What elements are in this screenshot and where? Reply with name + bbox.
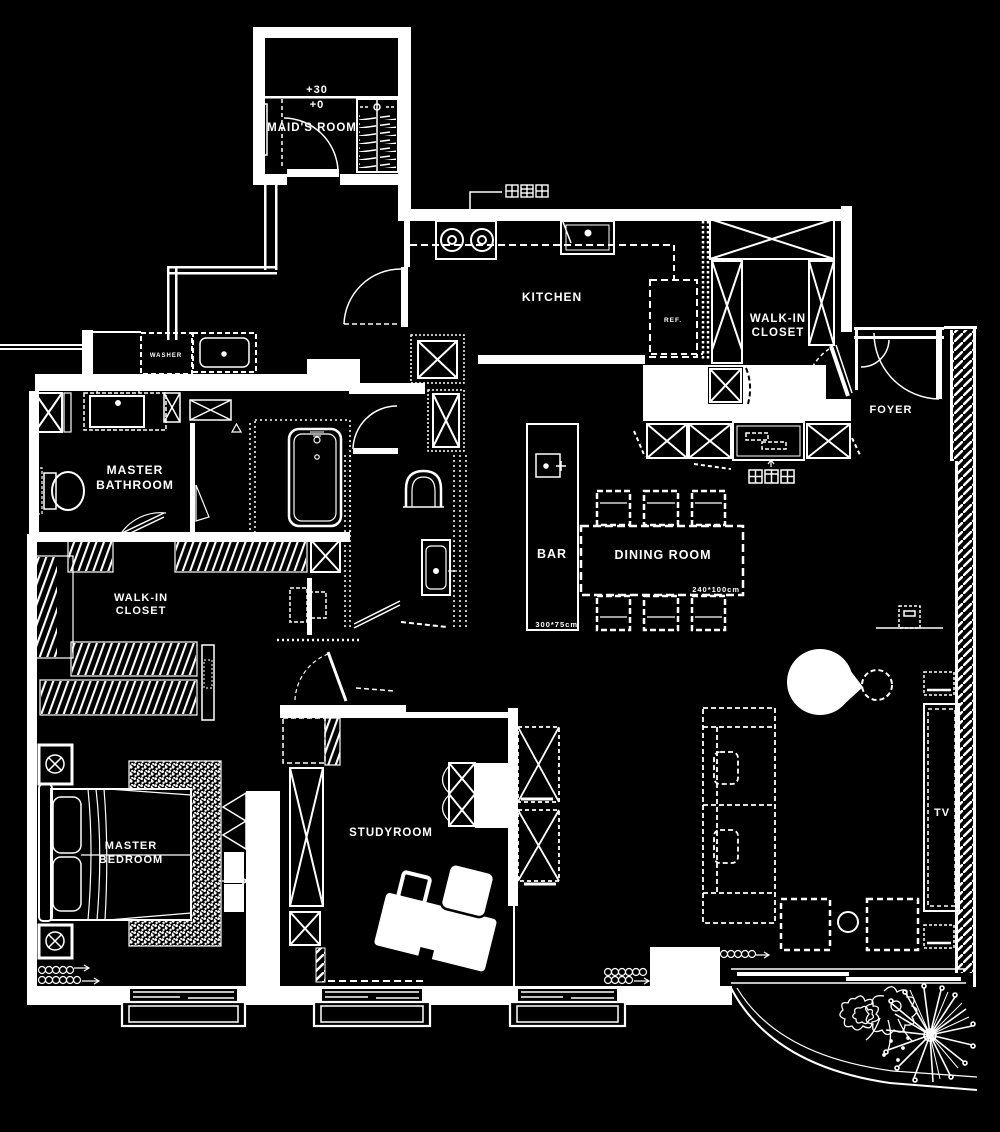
svg-text:240*100cm: 240*100cm (692, 585, 740, 594)
svg-text:REF.: REF. (664, 317, 682, 324)
svg-text:MAID'S ROOM: MAID'S ROOM (267, 122, 357, 134)
svg-text:300*75cm: 300*75cm (535, 620, 578, 629)
svg-text:+0: +0 (310, 99, 325, 111)
svg-text:BATHROOM: BATHROOM (96, 478, 174, 492)
svg-text:BEDROOM: BEDROOM (99, 854, 163, 866)
svg-text:CLOSET: CLOSET (116, 605, 167, 617)
svg-text:KITCHEN: KITCHEN (522, 290, 582, 304)
svg-text:WALK-IN: WALK-IN (750, 313, 806, 325)
svg-text:DINING ROOM: DINING ROOM (614, 548, 711, 562)
svg-text:MASTER: MASTER (107, 463, 164, 477)
svg-text:MASTER: MASTER (105, 840, 157, 852)
svg-text:+30: +30 (306, 84, 328, 96)
svg-text:BAR: BAR (537, 547, 567, 561)
svg-text:TV: TV (934, 807, 950, 819)
svg-text:WASHER: WASHER (150, 353, 182, 359)
svg-text:WALK-IN: WALK-IN (114, 592, 168, 604)
svg-text:CLOSET: CLOSET (752, 327, 805, 339)
svg-text:STUDYROOM: STUDYROOM (349, 827, 433, 839)
svg-text:FOYER: FOYER (870, 404, 913, 416)
